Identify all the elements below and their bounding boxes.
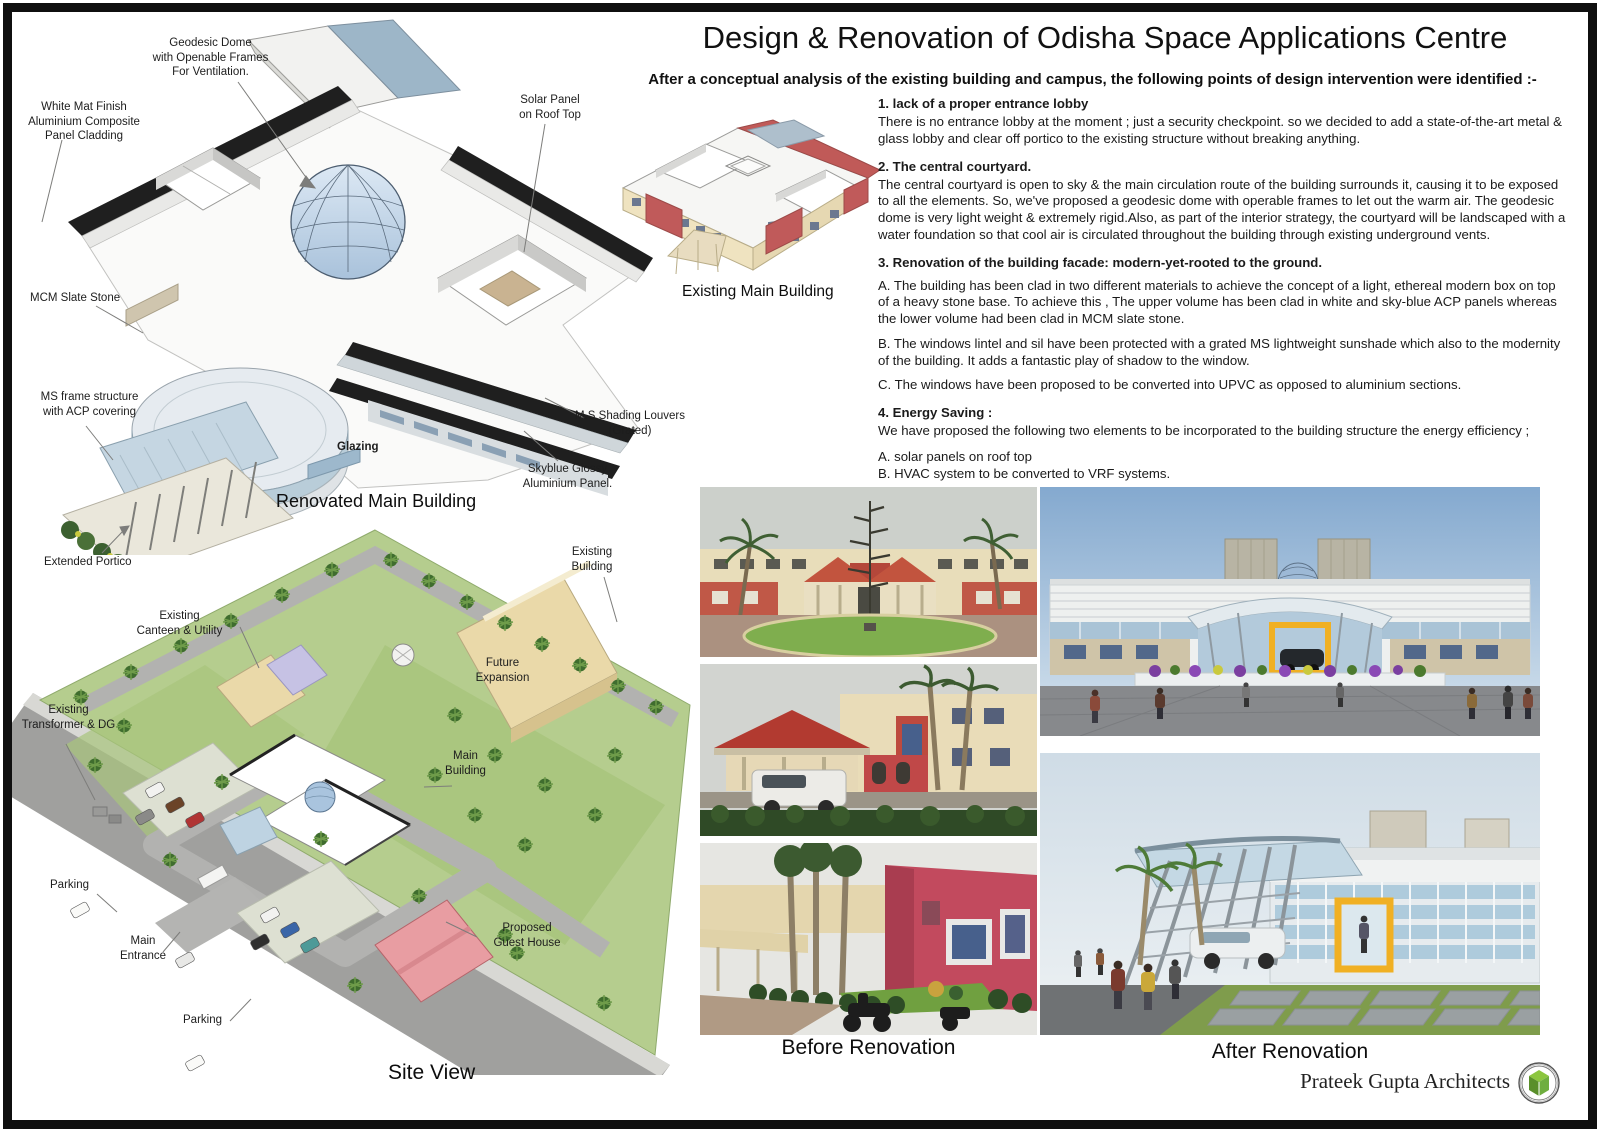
note-heading-4: 4. Energy Saving :	[878, 405, 1568, 420]
label-main-entrance: Main Entrance	[103, 934, 183, 963]
label-shading-louvers: M.S Shading Louvers (Grated)	[570, 409, 690, 438]
label-geodesic-dome: Geodesic Dome with Openable Frames For V…	[148, 36, 273, 80]
note-heading-3: 3. Renovation of the building facade: mo…	[878, 255, 1568, 270]
label-glazing: Glazing	[337, 440, 397, 455]
label-parking-west: Parking	[50, 878, 120, 893]
label-main-building: Main Building	[428, 749, 503, 778]
note-para-4a: We have proposed the following two eleme…	[878, 423, 1568, 440]
before-photo-pink-corner	[700, 843, 1037, 1035]
label-acp-cladding: White Mat Finish Aluminium Composite Pan…	[20, 100, 148, 144]
page-title: Design & Renovation of Odisha Space Appl…	[655, 20, 1555, 56]
architect-credit: Prateek Gupta Architects	[1180, 1069, 1510, 1094]
note-para-3a: A. The building has been clad in two dif…	[878, 278, 1568, 328]
note-para-3b: B. The windows lintel and sil have been …	[878, 336, 1568, 370]
before-photo-porch-car	[700, 664, 1037, 836]
presentation-board: Geodesic Dome with Openable Frames For V…	[0, 0, 1600, 1132]
existing-axon-caption: Existing Main Building	[682, 283, 834, 301]
before-photo-front-lawn	[700, 487, 1037, 657]
note-list-4a: A. solar panels on roof top	[878, 448, 1568, 465]
design-notes: 1. lack of a proper entrance lobby There…	[878, 96, 1568, 482]
note-para-3c: C. The windows have been proposed to be …	[878, 377, 1568, 394]
note-heading-2: 2. The central courtyard.	[878, 159, 1568, 174]
label-existing-building: Existing Building	[552, 545, 632, 574]
site-view-drawing	[5, 515, 695, 1075]
after-render-front-elevation	[1040, 487, 1540, 736]
note-para-1a: There is no entrance lobby at the moment…	[878, 114, 1568, 148]
label-future-expansion: Future Expansion	[450, 656, 555, 685]
note-heading-1: 1. lack of a proper entrance lobby	[878, 96, 1568, 111]
after-render-portico-closeup	[1040, 753, 1540, 1035]
architect-logo-icon	[1516, 1060, 1562, 1106]
note-list-4b: B. HVAC system to be converted to VRF sy…	[878, 465, 1568, 482]
page-subtitle: After a conceptual analysis of the exist…	[625, 71, 1560, 88]
after-renovation-caption: After Renovation	[1040, 1040, 1540, 1064]
note-para-2a: The central courtyard is open to sky & t…	[878, 177, 1568, 244]
label-guest-house: Proposed Guest House	[472, 921, 582, 950]
label-mcm-slate: MCM Slate Stone	[30, 291, 140, 306]
label-parking-south: Parking	[183, 1013, 253, 1028]
site-view-caption: Site View	[388, 1061, 475, 1085]
label-extended-portico: Extended Portico	[44, 555, 159, 570]
label-existing-transformer: Existing Transformer & DG	[6, 703, 131, 732]
label-existing-canteen: Existing Canteen & Utility	[112, 609, 247, 638]
label-solar-panel: Solar Panel on Roof Top	[500, 93, 600, 122]
before-renovation-caption: Before Renovation	[700, 1036, 1037, 1060]
renovated-axon-caption: Renovated Main Building	[276, 491, 476, 512]
label-ms-frame: MS frame structure with ACP covering	[22, 390, 157, 419]
existing-main-building-drawing	[598, 98, 890, 288]
label-skyblue-panel: Skyblue Glossy Aluminium Panel.	[505, 462, 630, 491]
